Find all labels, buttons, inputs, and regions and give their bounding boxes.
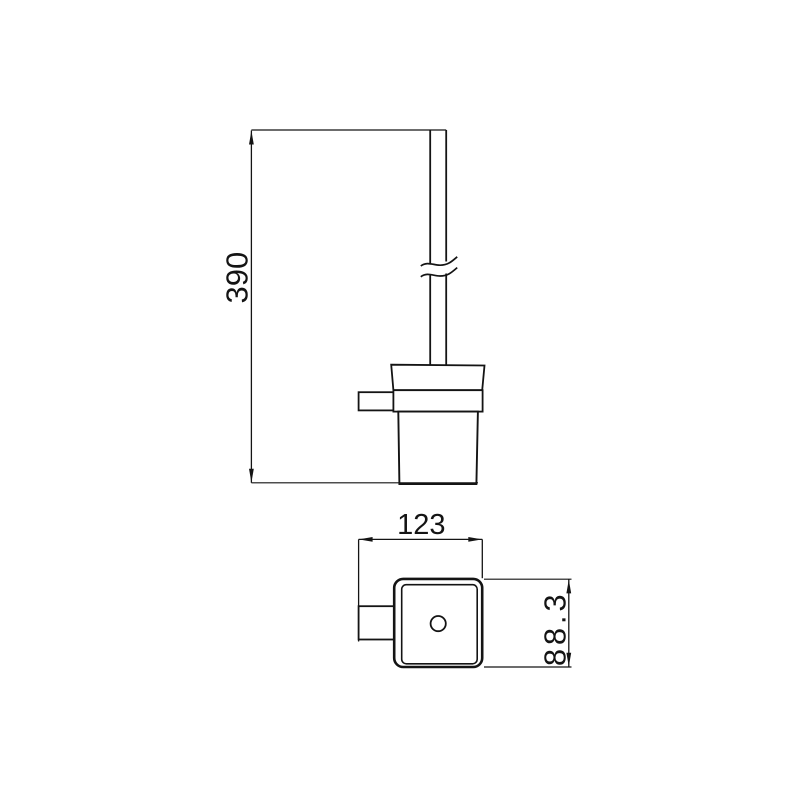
svg-text:123: 123 [397, 509, 445, 541]
svg-text:88.3: 88.3 [538, 591, 573, 667]
svg-text:390: 390 [219, 252, 254, 304]
